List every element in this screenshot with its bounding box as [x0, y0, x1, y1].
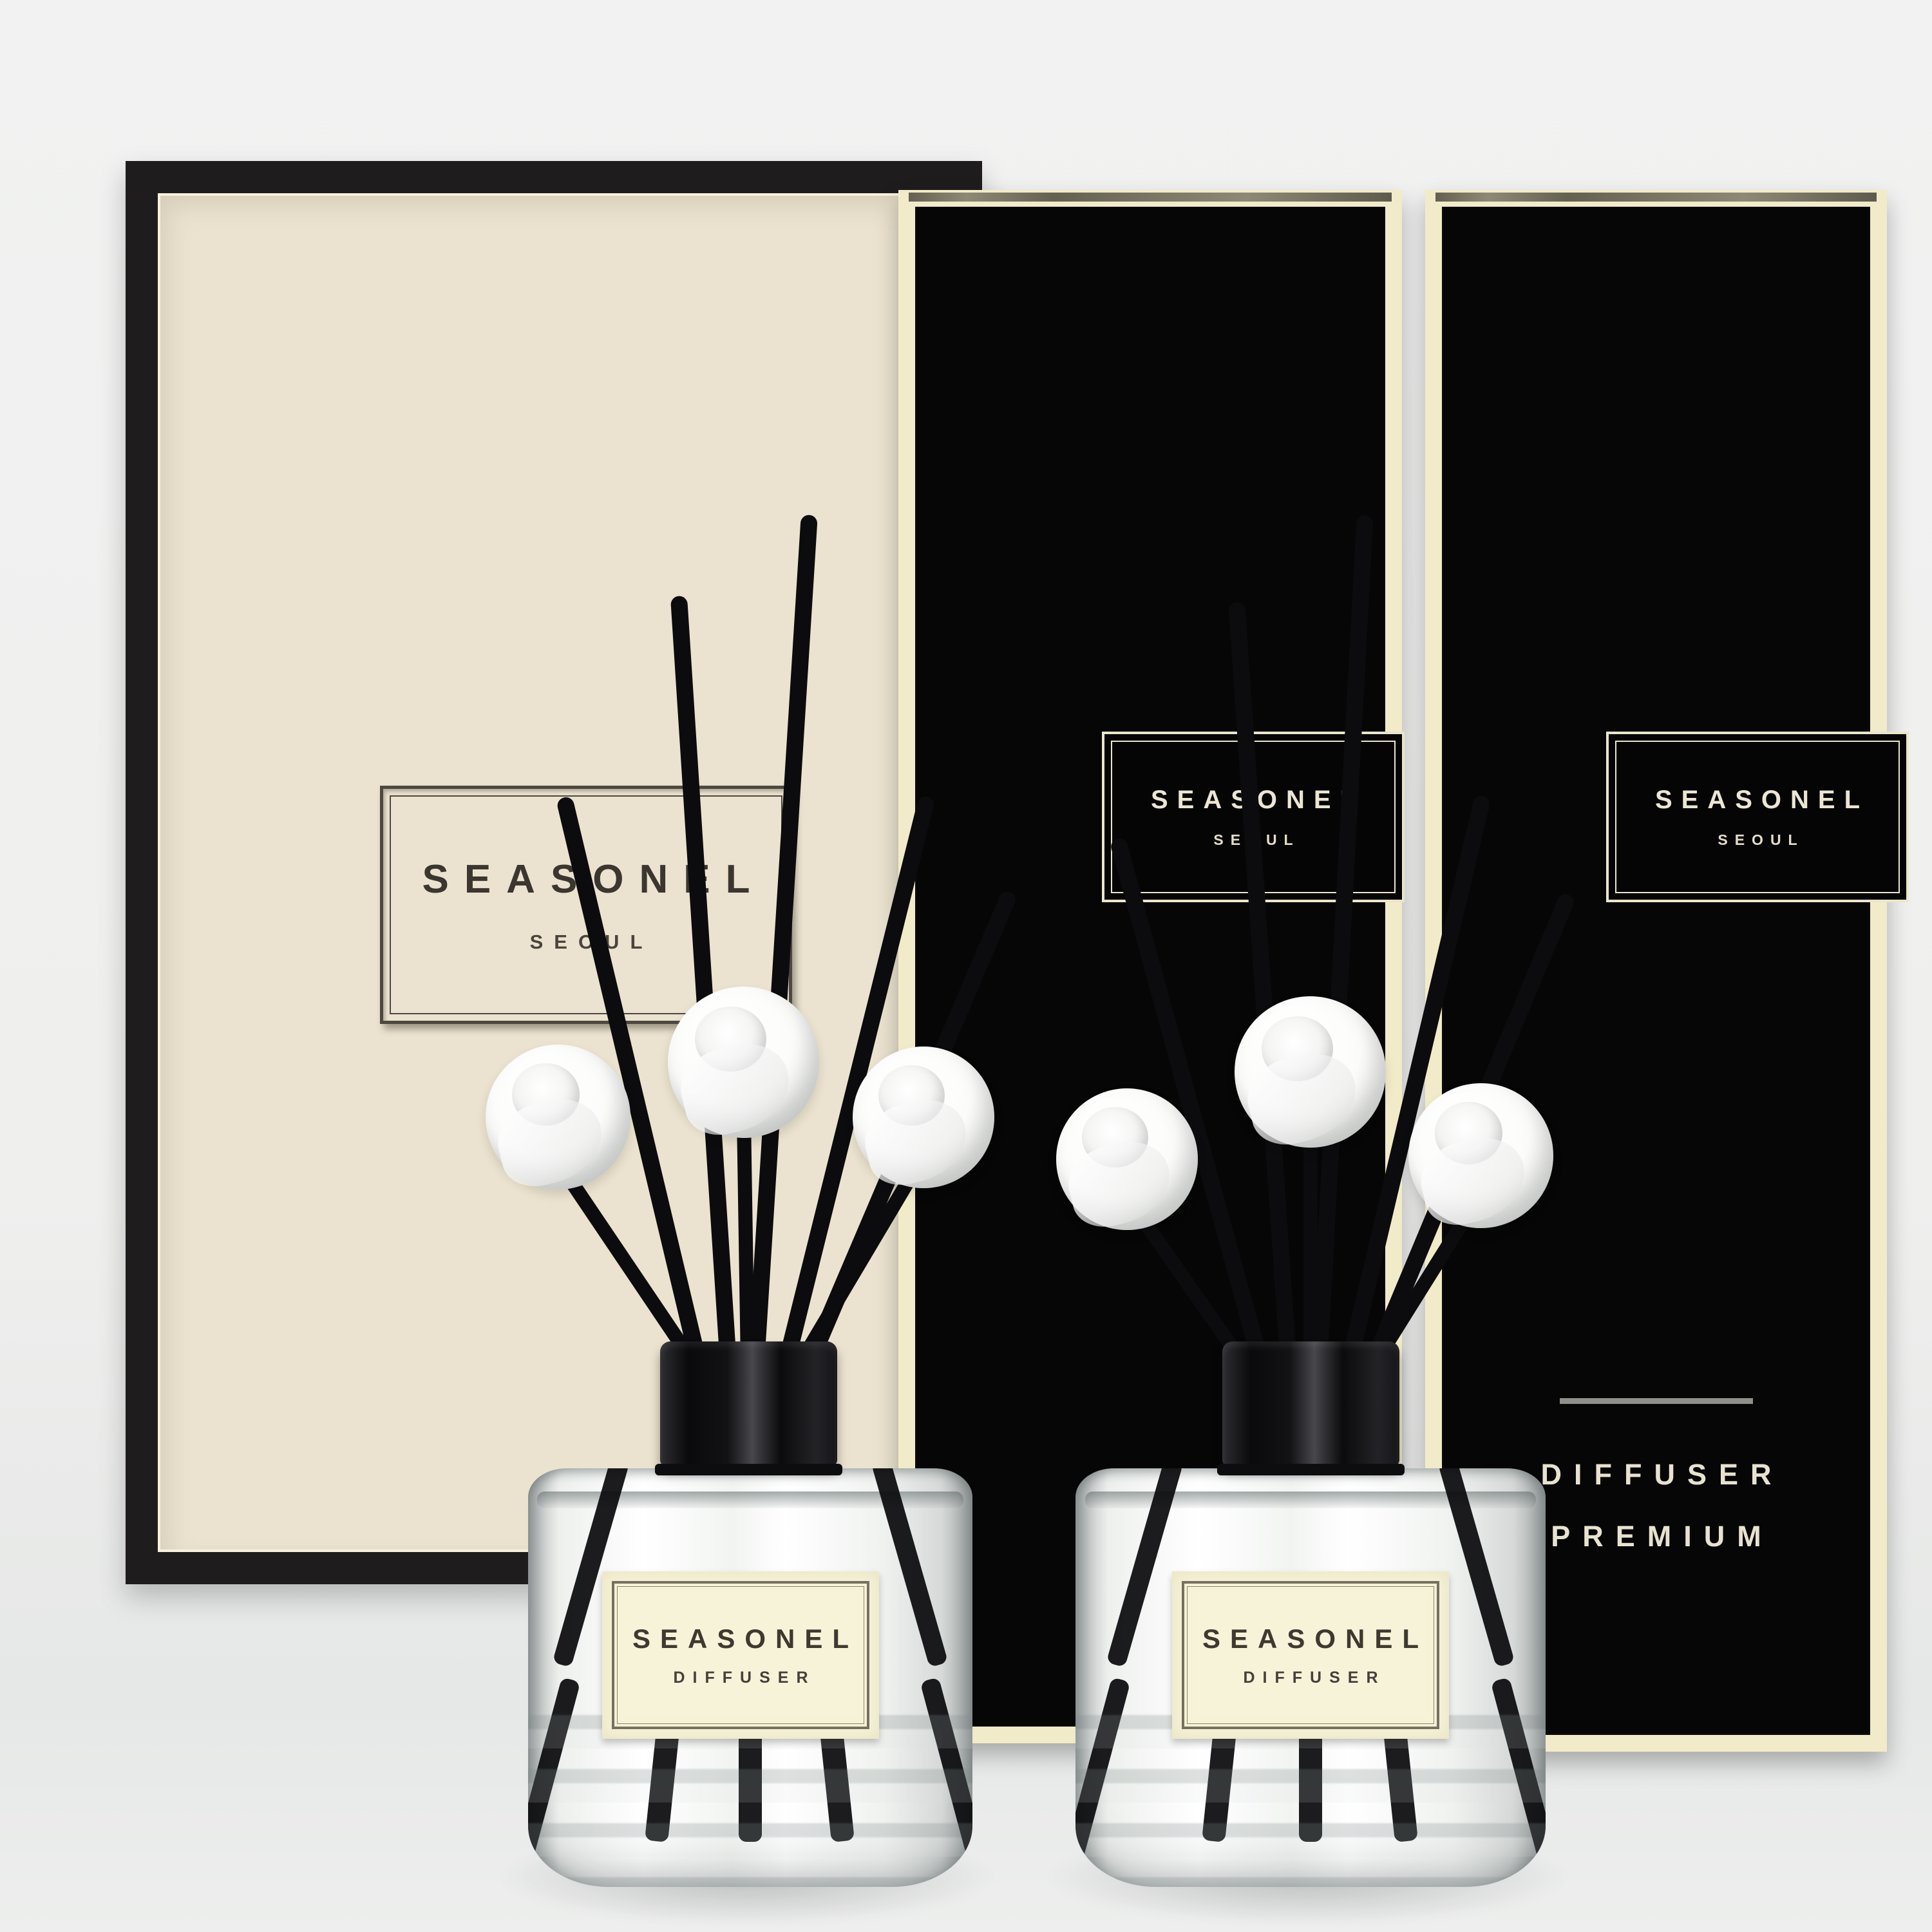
reed-through-glass — [739, 1728, 762, 1842]
black-box-right-logo-plate: SEASONEL SEOUL — [1606, 732, 1909, 902]
label-product-text: DIFFUSER — [674, 1669, 816, 1687]
reed-through-glass — [528, 1677, 580, 1862]
rose-flower — [668, 987, 819, 1138]
label-brand-text: SEASONEL — [1202, 1624, 1428, 1654]
footer-premium-text: PREMIUM — [1551, 1506, 1774, 1567]
reed-through-glass — [1299, 1728, 1322, 1842]
rose-flower — [1056, 1088, 1198, 1230]
footer-divider-line — [1560, 1398, 1753, 1404]
black-box-right-brand-text: SEASONEL — [1655, 786, 1869, 815]
rose-flower — [853, 1046, 994, 1188]
black-box-right-city-text: SEOUL — [1718, 831, 1804, 849]
cream-gift-box: SEASONEL SEOUL — [126, 161, 982, 1584]
rose-flower — [1235, 996, 1386, 1148]
footer-diffuser-text: DIFFUSER — [1541, 1444, 1784, 1506]
bottle-label-left: SEASONEL DIFFUSER — [602, 1571, 879, 1739]
product-photo-scene: SEASONEL SEOUL SEASONEL SEOUL SEASONEL S… — [0, 0, 1932, 1932]
reed-through-glass — [1491, 1677, 1546, 1862]
label-product-text: DIFFUSER — [1244, 1669, 1386, 1687]
reed-through-glass — [1383, 1723, 1418, 1842]
bottle-label-right: SEASONEL DIFFUSER — [1172, 1571, 1449, 1739]
label-brand-text: SEASONEL — [632, 1624, 858, 1654]
reed-through-glass — [1202, 1723, 1237, 1842]
rose-flower — [486, 1045, 630, 1189]
reed-through-glass — [920, 1677, 972, 1862]
bottle-cap-left — [660, 1341, 837, 1466]
reed-through-glass — [1075, 1677, 1130, 1862]
reed-through-glass — [819, 1723, 855, 1842]
reed-through-glass — [645, 1723, 680, 1842]
bottle-cap-right — [1222, 1341, 1399, 1466]
rose-flower — [1408, 1083, 1553, 1228]
